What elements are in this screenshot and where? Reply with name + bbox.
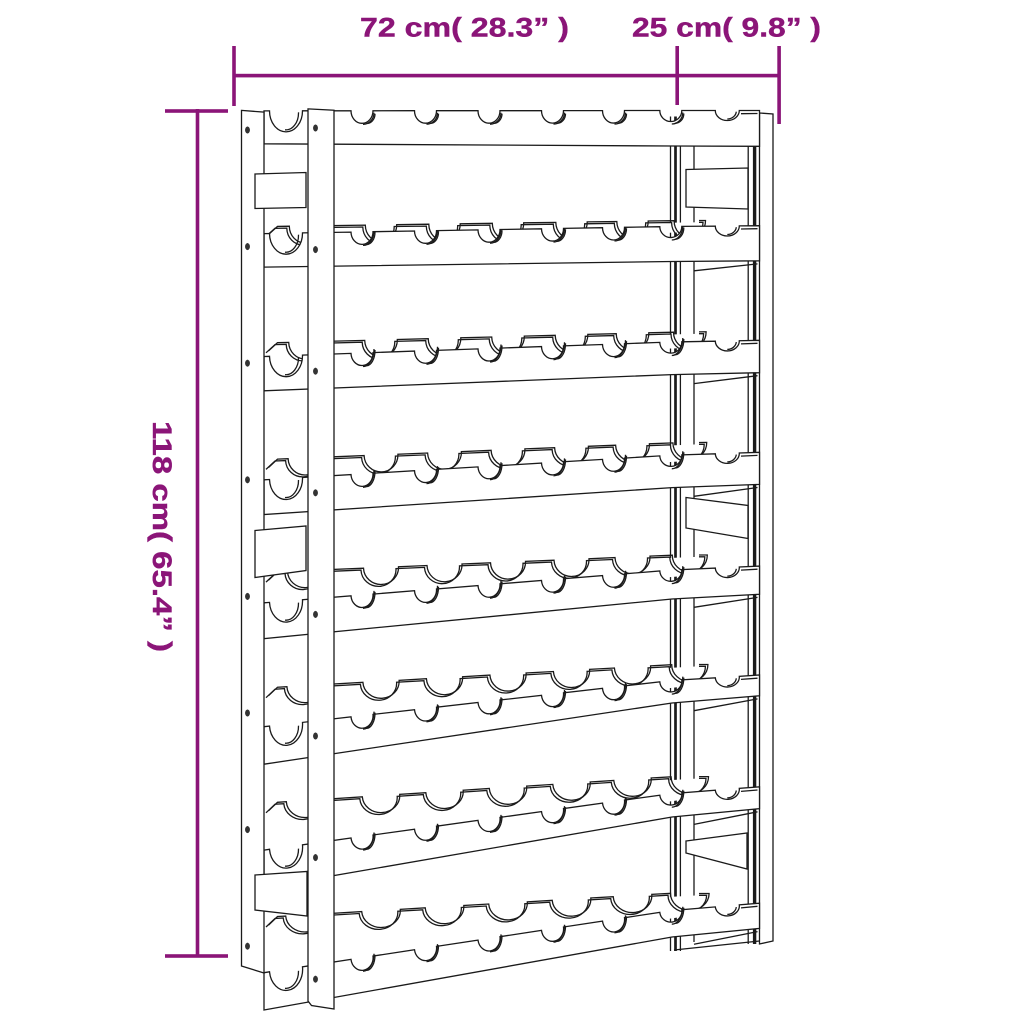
svg-text:25 cm( 9.8” ): 25 cm( 9.8” ) [632, 13, 821, 43]
svg-text:72 cm( 28.3” ): 72 cm( 28.3” ) [360, 13, 569, 43]
svg-text:118 cm( 65.4” ): 118 cm( 65.4” ) [147, 421, 177, 652]
